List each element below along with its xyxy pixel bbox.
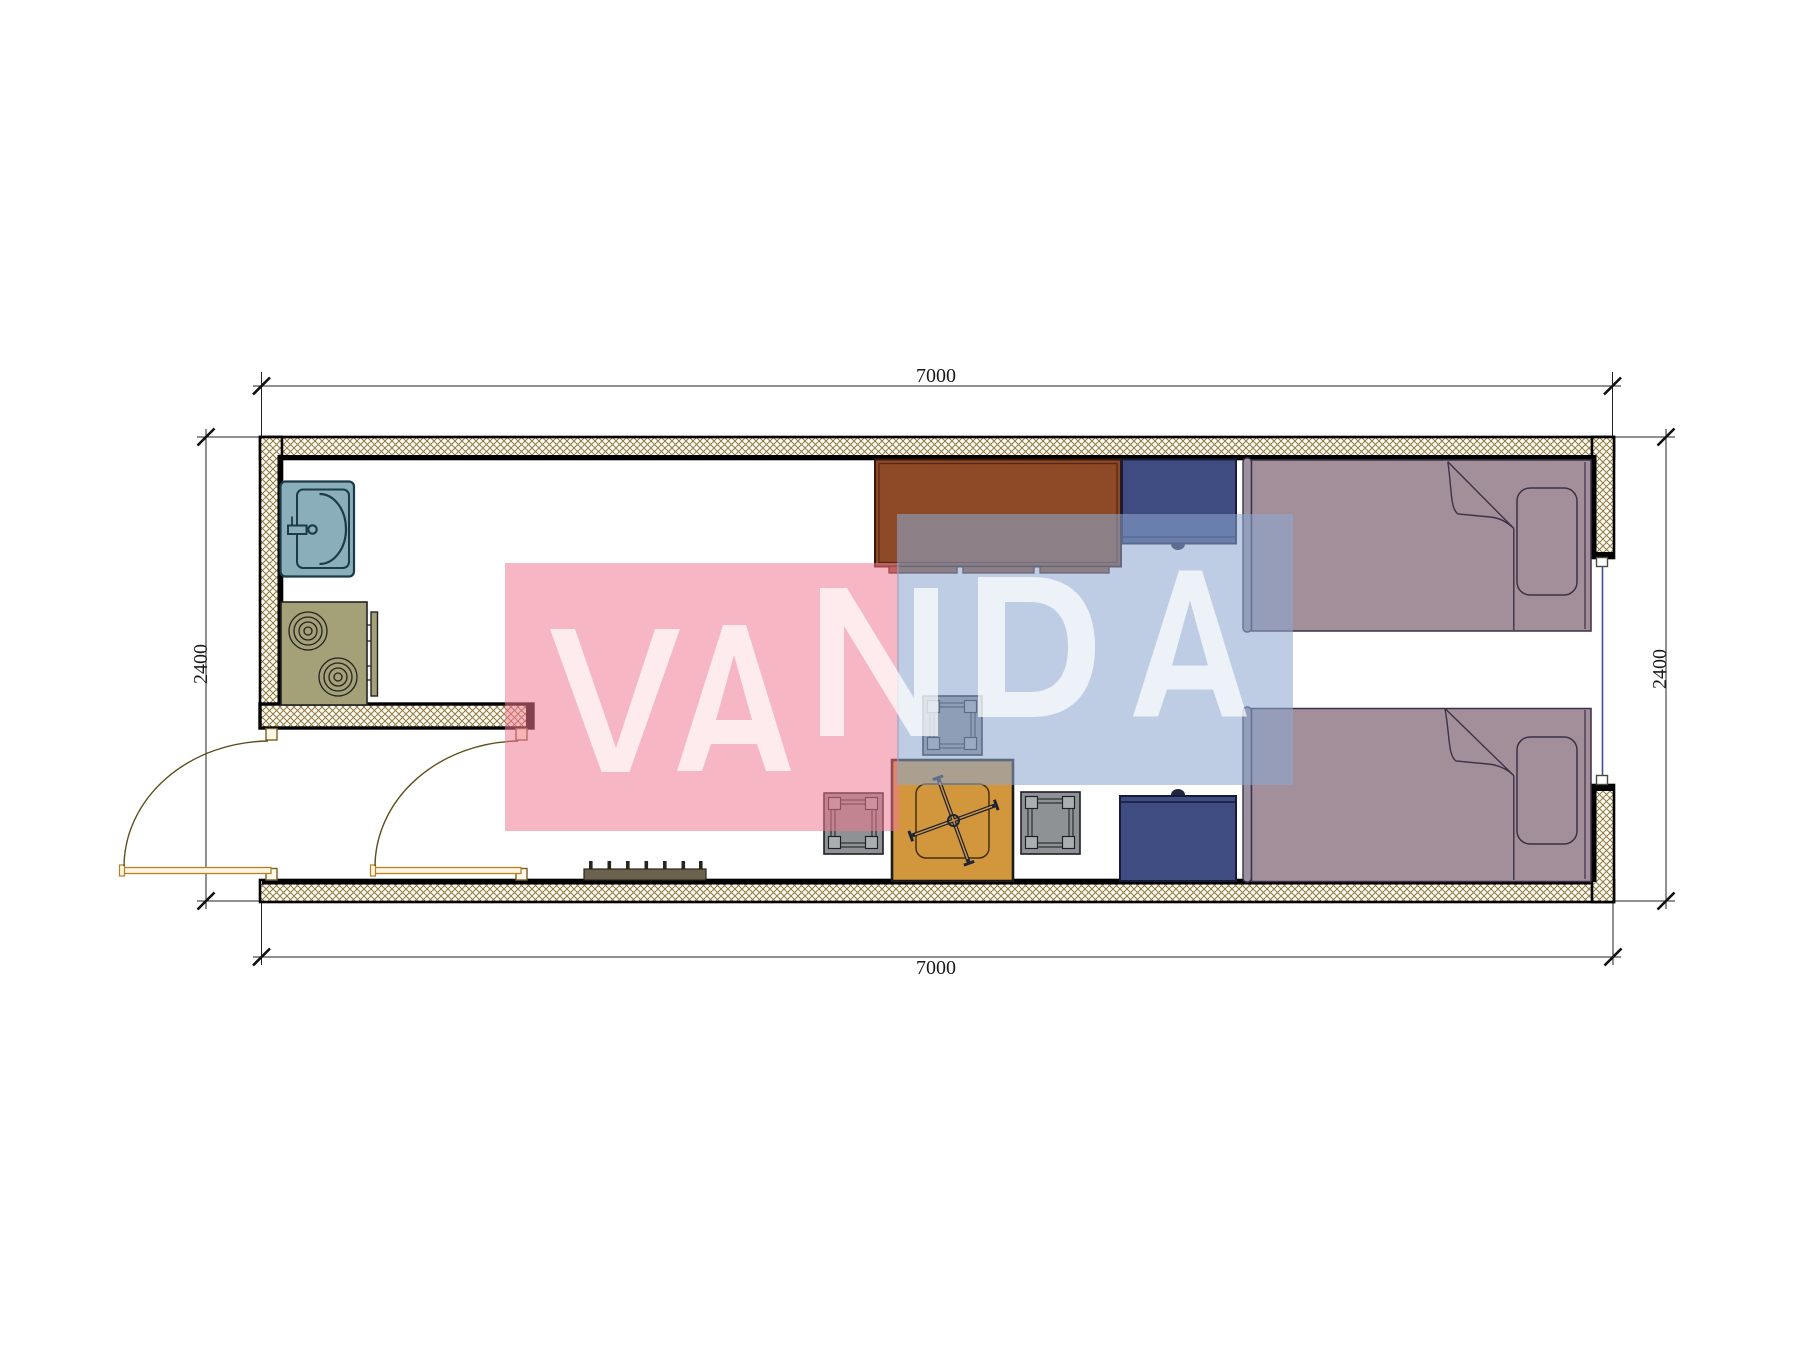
- svg-text:7000: 7000: [916, 365, 956, 387]
- svg-text:2400: 2400: [190, 644, 212, 684]
- svg-text:7000: 7000: [916, 957, 956, 979]
- svg-text:2400: 2400: [1649, 649, 1671, 689]
